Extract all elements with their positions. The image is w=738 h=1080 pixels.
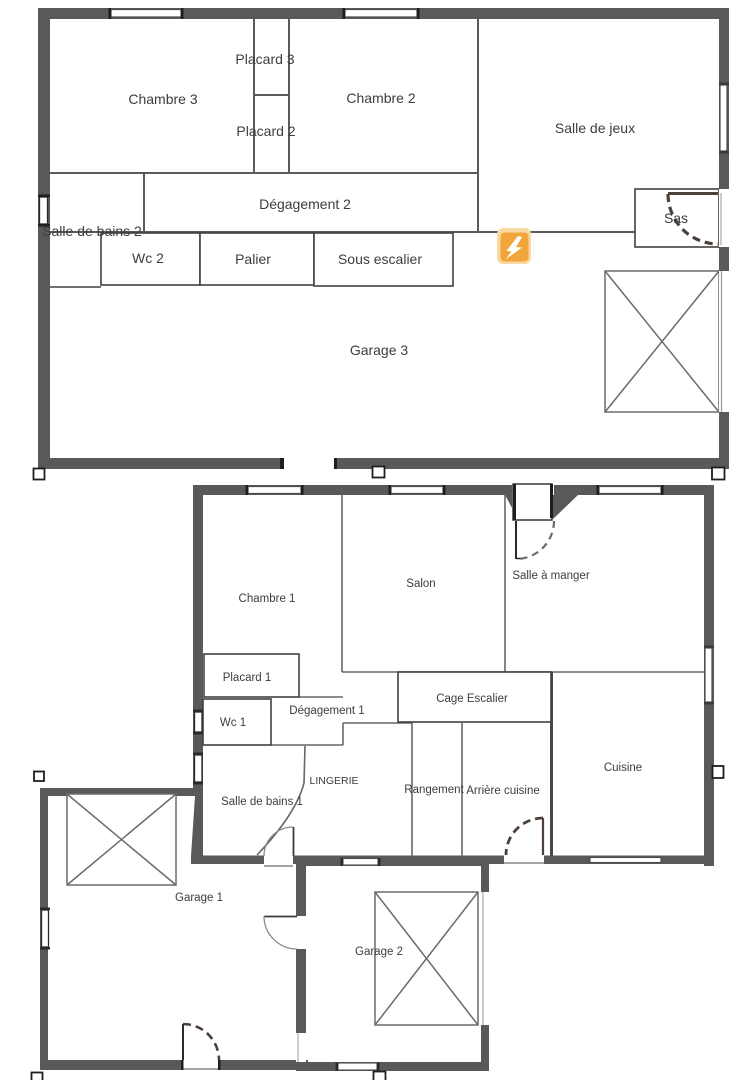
svg-text:Sas: Sas bbox=[664, 210, 688, 226]
svg-text:Arrière cuisine: Arrière cuisine bbox=[466, 785, 540, 797]
svg-text:Placard 3: Placard 3 bbox=[235, 51, 294, 67]
svg-text:Placard 2: Placard 2 bbox=[236, 123, 295, 139]
svg-text:Salle de bains 1: Salle de bains 1 bbox=[221, 796, 303, 808]
svg-text:Dégagement 1: Dégagement 1 bbox=[289, 705, 364, 717]
svg-text:Salle de bains 2: Salle de bains 2 bbox=[42, 223, 142, 239]
svg-text:Cage Escalier: Cage Escalier bbox=[436, 693, 508, 705]
svg-text:Garage 3: Garage 3 bbox=[350, 342, 409, 358]
svg-text:Rangement: Rangement bbox=[404, 784, 464, 796]
svg-text:Cuisine: Cuisine bbox=[604, 762, 642, 774]
svg-text:Salon: Salon bbox=[406, 578, 435, 590]
svg-text:Salle de jeux: Salle de jeux bbox=[555, 120, 635, 136]
svg-text:Wc 1: Wc 1 bbox=[220, 717, 246, 729]
svg-text:Salle à manger: Salle à manger bbox=[512, 570, 590, 582]
svg-text:Chambre 3: Chambre 3 bbox=[128, 91, 197, 107]
svg-text:Placard 1: Placard 1 bbox=[223, 672, 272, 684]
svg-text:Wc 2: Wc 2 bbox=[132, 250, 164, 266]
svg-text:Chambre 2: Chambre 2 bbox=[346, 90, 415, 106]
svg-text:LINGERIE: LINGERIE bbox=[309, 775, 358, 787]
svg-text:Garage 2: Garage 2 bbox=[355, 946, 403, 958]
svg-text:Sous escalier: Sous escalier bbox=[338, 251, 422, 267]
svg-text:Garage 1: Garage 1 bbox=[175, 892, 223, 904]
svg-text:Palier: Palier bbox=[235, 251, 271, 267]
svg-text:Dégagement 2: Dégagement 2 bbox=[259, 196, 351, 212]
svg-text:Chambre 1: Chambre 1 bbox=[239, 593, 296, 605]
